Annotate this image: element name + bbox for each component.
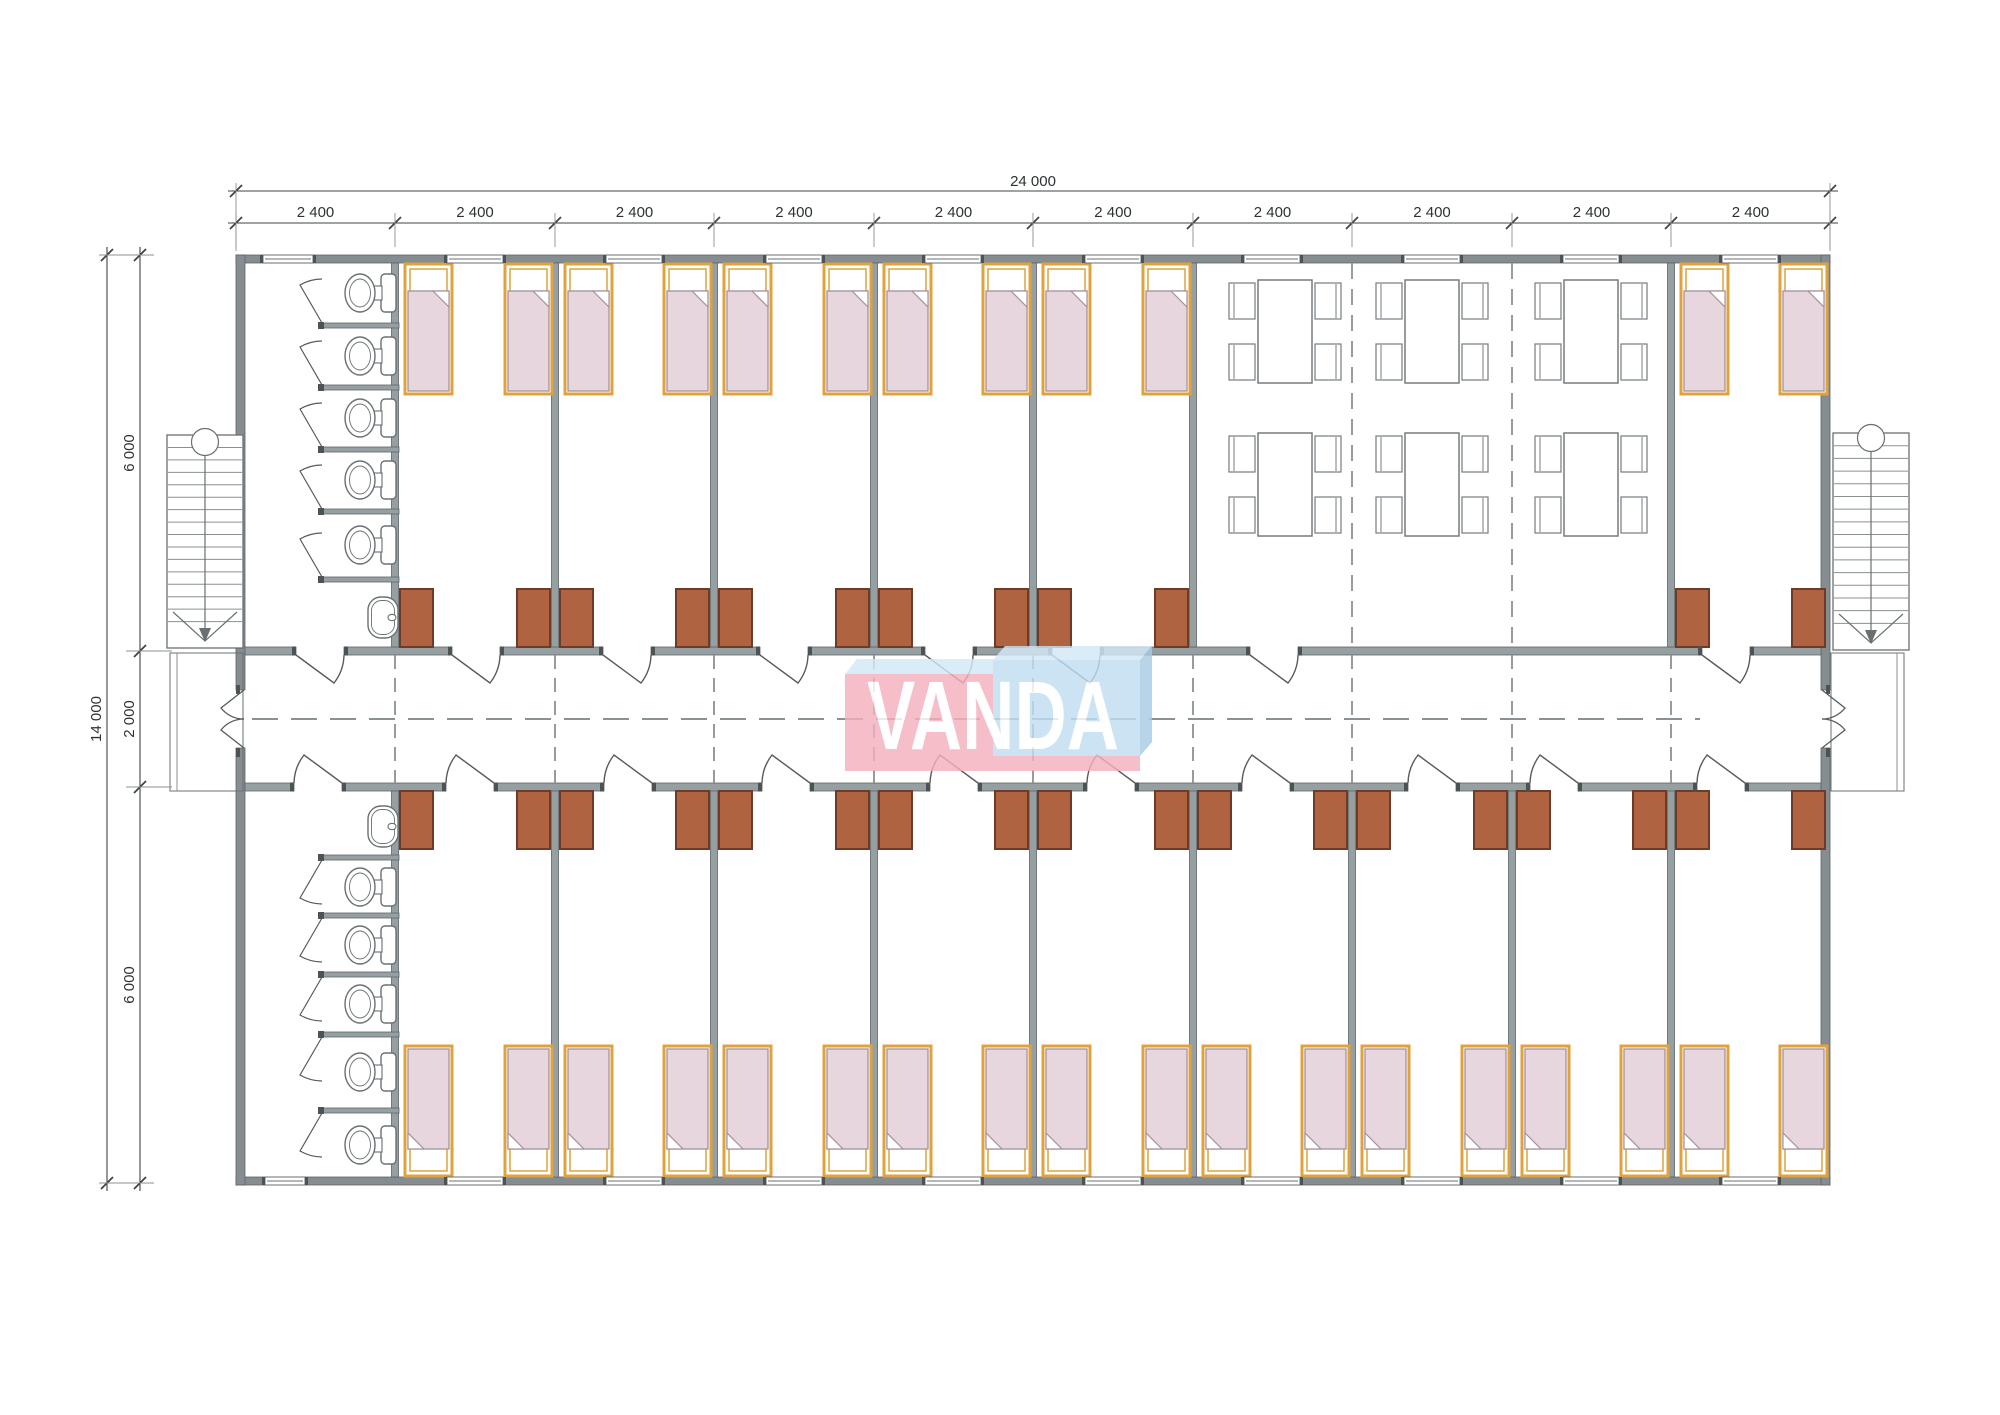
window-jamb <box>822 1177 825 1185</box>
dining-chair <box>1621 436 1647 472</box>
door-swing <box>1702 655 1750 683</box>
door-jamb <box>292 647 296 656</box>
stall-door-jamb <box>318 1031 324 1038</box>
exterior-wall-top <box>662 255 766 263</box>
dining-chair <box>1315 436 1341 472</box>
bed-blanket <box>1684 1049 1725 1149</box>
corridor-wall-bottom <box>342 783 446 791</box>
wardrobe <box>400 791 433 849</box>
toilet-tank <box>381 461 396 499</box>
dimension-label: 2 400 <box>935 204 973 221</box>
corridor-wall-top <box>651 647 760 655</box>
door-jamb <box>442 783 446 792</box>
dining-chair <box>1621 497 1647 533</box>
door-jamb <box>973 647 977 656</box>
door-jamb <box>599 647 603 656</box>
dining-chair <box>1376 436 1402 472</box>
door-swing <box>760 655 808 683</box>
door-jamb <box>342 783 346 792</box>
stall-door-jamb <box>318 508 324 515</box>
dining-table <box>1258 433 1312 536</box>
corridor-wall-bottom <box>810 783 930 791</box>
corridor-wall-top <box>808 647 925 655</box>
door-jamb <box>494 783 498 792</box>
window-jamb <box>1719 1177 1722 1185</box>
wardrobe <box>560 791 593 849</box>
door-swing <box>1408 755 1456 783</box>
door-jamb <box>1246 647 1250 656</box>
bed-blanket <box>408 1049 449 1149</box>
stall-door-swing <box>300 341 322 385</box>
exterior-wall-top <box>981 255 1085 263</box>
dining-table <box>1564 280 1618 383</box>
door-jamb <box>1298 647 1302 656</box>
bed-blanket <box>887 1049 928 1149</box>
bed-blanket <box>1046 291 1087 391</box>
door-jamb <box>1745 783 1749 792</box>
wardrobe <box>836 589 869 647</box>
stall-door-jamb <box>318 912 324 919</box>
stall-door-swing <box>300 1037 322 1081</box>
window-jamb <box>922 1177 925 1185</box>
door-jamb <box>344 647 348 656</box>
bed-blanket <box>887 291 928 391</box>
door-jamb <box>448 647 452 656</box>
stall-door-swing <box>300 977 322 1021</box>
door-jamb <box>651 647 655 656</box>
wardrobe <box>1517 791 1550 849</box>
door-jamb <box>1698 647 1702 656</box>
partition-wall <box>392 263 399 647</box>
wardrobe <box>1038 791 1071 849</box>
exterior-wall-top <box>1300 255 1404 263</box>
stair-start-circle <box>192 429 219 456</box>
window-jamb <box>503 255 506 263</box>
stall-divider-wall <box>322 1108 399 1113</box>
wardrobe <box>995 791 1028 849</box>
dimension-label: 2 400 <box>775 204 813 221</box>
wardrobe <box>836 791 869 849</box>
dimension-label: 2 000 <box>121 700 138 738</box>
corridor-wall-bottom <box>978 783 1087 791</box>
wardrobe <box>517 589 550 647</box>
window-jamb <box>981 255 984 263</box>
door-swing <box>452 655 500 683</box>
window-jamb <box>1241 1177 1244 1185</box>
wardrobe <box>1676 791 1709 849</box>
bed-blanket <box>1146 291 1187 391</box>
door-swing <box>1250 655 1298 683</box>
floor-plan-drawing: 24 0002 4002 4002 4002 4002 4002 4002 40… <box>0 0 2000 1415</box>
entrance-door-leaf <box>221 690 244 719</box>
door-jamb <box>1693 783 1697 792</box>
stall-divider-wall <box>322 323 399 328</box>
stall-door-jamb <box>318 446 324 453</box>
window-jamb <box>603 255 606 263</box>
door-jamb <box>236 685 240 694</box>
bed-blanket <box>1465 1049 1506 1149</box>
wardrobe <box>1792 791 1825 849</box>
bed-blanket <box>568 291 609 391</box>
bed-blanket <box>1206 1049 1247 1149</box>
dimension-label: 6 000 <box>121 966 138 1004</box>
exterior-wall-bottom <box>981 1177 1085 1185</box>
exterior-wall-top <box>313 255 447 263</box>
exterior-wall-bottom <box>1141 1177 1244 1185</box>
wardrobe <box>995 589 1028 647</box>
window-jamb <box>260 255 263 263</box>
dining-chair <box>1535 436 1561 472</box>
stall-divider-wall <box>322 1032 399 1037</box>
corridor-wall-top <box>500 647 603 655</box>
dimension-label: 6 000 <box>121 434 138 472</box>
vanda-logo: VANDA <box>845 646 1152 771</box>
window-jamb <box>444 255 447 263</box>
wardrobe <box>1792 589 1825 647</box>
exterior-wall-top <box>503 255 606 263</box>
door-swing <box>446 755 494 783</box>
door-jamb <box>290 783 294 792</box>
exterior-wall-top <box>822 255 925 263</box>
stall-divider-wall <box>322 577 399 582</box>
dining-chair <box>1315 344 1341 380</box>
door-jamb <box>236 748 240 757</box>
bed-blanket <box>1046 1049 1087 1149</box>
window-jamb <box>1560 255 1563 263</box>
bed-blanket <box>986 291 1027 391</box>
door-jamb <box>808 647 812 656</box>
stall-door-jamb <box>318 576 324 583</box>
wardrobe <box>879 791 912 849</box>
stall-door-swing <box>300 465 322 509</box>
wardrobe <box>676 791 709 849</box>
window-jamb <box>262 1177 265 1185</box>
stall-door-swing <box>300 860 322 904</box>
wardrobe <box>1676 589 1709 647</box>
bed-blanket <box>827 291 868 391</box>
door-jamb <box>1238 783 1242 792</box>
dining-chair <box>1376 497 1402 533</box>
dining-chair <box>1462 283 1488 319</box>
dining-chair <box>1535 497 1561 533</box>
door-jamb <box>600 783 604 792</box>
bed-blanket <box>1783 291 1824 391</box>
exterior-wall-bottom <box>1619 1177 1722 1185</box>
exterior-wall-bottom <box>503 1177 606 1185</box>
dining-chair <box>1229 436 1255 472</box>
bed-blanket <box>667 291 708 391</box>
dining-chair <box>1376 283 1402 319</box>
bed-blanket <box>727 291 768 391</box>
exterior-wall-bottom <box>822 1177 925 1185</box>
door-jamb <box>500 647 504 656</box>
exterior-wall-left <box>236 748 245 1185</box>
bed-blanket <box>667 1049 708 1149</box>
door-swing <box>603 655 651 683</box>
toilet-tank <box>381 337 396 375</box>
door-swing <box>294 755 342 783</box>
dining-table <box>1564 433 1618 536</box>
bed-blanket <box>986 1049 1027 1149</box>
corridor-wall-bottom <box>245 783 294 791</box>
toilet-tank <box>381 1053 396 1091</box>
window-jamb <box>305 1177 308 1185</box>
toilet-tank <box>381 926 396 964</box>
wardrobe <box>676 589 709 647</box>
window-jamb <box>1778 255 1781 263</box>
window-jamb <box>1401 255 1404 263</box>
bed-blanket <box>827 1049 868 1149</box>
partition-wall <box>392 791 399 1177</box>
stall-divider-wall <box>322 855 399 860</box>
door-swing <box>1697 755 1745 783</box>
door-jamb <box>810 783 814 792</box>
window-jamb <box>822 255 825 263</box>
door-jamb <box>758 783 762 792</box>
window-jamb <box>503 1177 506 1185</box>
wardrobe <box>517 791 550 849</box>
dining-chair <box>1229 283 1255 319</box>
bed-blanket <box>508 291 549 391</box>
dining-chair <box>1462 436 1488 472</box>
stall-door-jamb <box>318 384 324 391</box>
wardrobe <box>1198 791 1231 849</box>
wash-basin-tap <box>388 823 396 829</box>
window-jamb <box>1401 1177 1404 1185</box>
entrance-door-leaf <box>1822 719 1845 748</box>
dining-chair <box>1315 283 1341 319</box>
window-jamb <box>1719 255 1722 263</box>
window-jamb <box>1619 255 1622 263</box>
door-jamb <box>1456 783 1460 792</box>
window-jamb <box>1082 1177 1085 1185</box>
stall-divider-wall <box>322 385 399 390</box>
door-jamb <box>978 783 982 792</box>
toilet-tank <box>381 1126 396 1164</box>
bed-blanket <box>1684 291 1725 391</box>
corridor-wall-top <box>1298 647 1702 655</box>
window-jamb <box>1460 255 1463 263</box>
wardrobe <box>719 791 752 849</box>
toilet-tank <box>381 274 396 312</box>
door-jamb <box>926 783 930 792</box>
stall-divider-wall <box>322 972 399 977</box>
toilet-tank <box>381 868 396 906</box>
dining-chair <box>1462 344 1488 380</box>
bed-blanket <box>408 291 449 391</box>
corridor-wall-bottom <box>1135 783 1242 791</box>
dimension-label: 14 000 <box>88 696 105 742</box>
bed-blanket <box>1783 1049 1824 1149</box>
door-jamb <box>1826 748 1830 757</box>
dining-chair <box>1376 344 1402 380</box>
entrance-door-leaf <box>221 719 244 748</box>
exterior-wall-top <box>1619 255 1722 263</box>
door-swing <box>1242 755 1290 783</box>
corridor-wall-top <box>1750 647 1821 655</box>
corridor-wall-bottom <box>652 783 762 791</box>
stall-door-swing <box>300 533 322 577</box>
dining-chair <box>1535 283 1561 319</box>
bed-blanket <box>1305 1049 1346 1149</box>
door-jamb <box>1404 783 1408 792</box>
stall-door-swing <box>300 279 322 323</box>
window-jamb <box>662 1177 665 1185</box>
window-jamb <box>922 255 925 263</box>
stall-door-jamb <box>318 322 324 329</box>
dining-chair <box>1462 497 1488 533</box>
door-jamb <box>1750 647 1754 656</box>
window-jamb <box>313 255 316 263</box>
wardrobe <box>879 589 912 647</box>
corridor-wall-bottom <box>1290 783 1408 791</box>
door-jamb <box>921 647 925 656</box>
wardrobe <box>1314 791 1347 849</box>
wardrobe <box>1357 791 1390 849</box>
corridor-wall-bottom <box>494 783 604 791</box>
bed-blanket <box>1146 1049 1187 1149</box>
toilet-tank <box>381 985 396 1023</box>
window-jamb <box>1082 255 1085 263</box>
dining-table <box>1405 433 1459 536</box>
dimension-label: 2 400 <box>1254 204 1292 221</box>
corridor-wall-bottom <box>1578 783 1697 791</box>
stall-door-jamb <box>318 1107 324 1114</box>
exterior-wall-top <box>1460 255 1563 263</box>
door-jamb <box>1083 783 1087 792</box>
exterior-wall-bottom <box>662 1177 766 1185</box>
window-jamb <box>1460 1177 1463 1185</box>
toilet-tank <box>381 526 396 564</box>
dimension-label: 2 400 <box>1094 204 1132 221</box>
logo-text: VANDA <box>867 661 1119 770</box>
door-swing <box>296 655 344 683</box>
dining-chair <box>1535 344 1561 380</box>
bed-blanket <box>1365 1049 1406 1149</box>
door-jamb <box>652 783 656 792</box>
dimension-label: 2 400 <box>1413 204 1451 221</box>
stall-divider-wall <box>322 509 399 514</box>
door-jamb <box>1578 783 1582 792</box>
window-jamb <box>662 255 665 263</box>
bed-blanket <box>727 1049 768 1149</box>
corridor-wall-top <box>344 647 452 655</box>
toilet-tank <box>381 399 396 437</box>
dining-chair <box>1229 344 1255 380</box>
stall-door-swing <box>300 918 322 962</box>
stall-door-jamb <box>318 971 324 978</box>
corridor-wall-bottom <box>1745 783 1821 791</box>
window-jamb <box>1141 255 1144 263</box>
stall-divider-wall <box>322 447 399 452</box>
logo-side-face <box>1140 646 1152 756</box>
dining-chair <box>1315 497 1341 533</box>
partition-wall <box>1668 263 1675 647</box>
wardrobe <box>1038 589 1071 647</box>
stall-door-swing <box>300 403 322 447</box>
window-jamb <box>1560 1177 1563 1185</box>
dimension-label: 2 400 <box>1573 204 1611 221</box>
window-jamb <box>1300 255 1303 263</box>
logo-top-face-right <box>993 646 1152 660</box>
dining-table <box>1405 280 1459 383</box>
bed-blanket <box>1624 1049 1665 1149</box>
wardrobe <box>1155 589 1188 647</box>
wardrobe <box>560 589 593 647</box>
stall-door-jamb <box>318 854 324 861</box>
dimension-label: 2 400 <box>616 204 654 221</box>
door-jamb <box>1135 783 1139 792</box>
bed-blanket <box>568 1049 609 1149</box>
wardrobe <box>400 589 433 647</box>
window-jamb <box>981 1177 984 1185</box>
corridor-wall-bottom <box>1456 783 1530 791</box>
bed-blanket <box>1525 1049 1566 1149</box>
wardrobe <box>1474 791 1507 849</box>
window-jamb <box>1778 1177 1781 1185</box>
porch-right <box>1831 653 1904 791</box>
dimension-label: 2 400 <box>1732 204 1770 221</box>
dining-chair <box>1229 497 1255 533</box>
exterior-wall-bottom <box>1460 1177 1563 1185</box>
stair-start-circle <box>1858 425 1885 452</box>
door-jamb <box>1526 783 1530 792</box>
exterior-wall-bottom <box>1300 1177 1404 1185</box>
wash-basin-tap <box>388 614 396 620</box>
dining-chair <box>1621 283 1647 319</box>
door-jamb <box>756 647 760 656</box>
porch-left <box>170 653 243 791</box>
dimension-label: 24 000 <box>1010 173 1056 190</box>
window-jamb <box>763 255 766 263</box>
door-jamb <box>1826 685 1830 694</box>
corridor-wall-top <box>245 647 296 655</box>
door-swing <box>604 755 652 783</box>
window-jamb <box>1141 1177 1144 1185</box>
exterior-wall-top <box>1141 255 1244 263</box>
window-jamb <box>1300 1177 1303 1185</box>
window-jamb <box>603 1177 606 1185</box>
bed-blanket <box>508 1049 549 1149</box>
exterior-wall-bottom <box>305 1177 447 1185</box>
wardrobe <box>719 589 752 647</box>
door-swing <box>762 755 810 783</box>
door-jamb <box>1290 783 1294 792</box>
dining-chair <box>1621 344 1647 380</box>
window-jamb <box>444 1177 447 1185</box>
dimension-label: 2 400 <box>297 204 335 221</box>
entrance-door-leaf <box>1822 690 1845 719</box>
window-jamb <box>1241 255 1244 263</box>
floorplan-canvas: 24 0002 4002 4002 4002 4002 4002 4002 40… <box>0 0 2000 1415</box>
door-swing <box>1530 755 1578 783</box>
wardrobe <box>1155 791 1188 849</box>
stall-door-swing <box>300 1113 322 1157</box>
stall-divider-wall <box>322 913 399 918</box>
wardrobe <box>1633 791 1666 849</box>
window-jamb <box>1619 1177 1622 1185</box>
dining-table <box>1258 280 1312 383</box>
dimension-label: 2 400 <box>456 204 494 221</box>
window-jamb <box>763 1177 766 1185</box>
